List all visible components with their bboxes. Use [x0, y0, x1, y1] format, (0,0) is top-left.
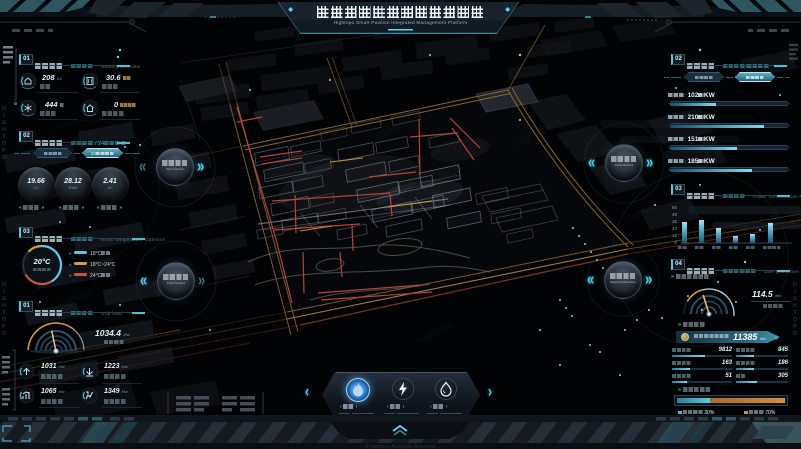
svg-text:60: 60 — [672, 205, 678, 210]
svg-text:© Hightopo All Rights Reserved: © Hightopo All Rights Reserved — [365, 443, 435, 449]
svg-text:12: 12 — [672, 233, 678, 238]
svg-text:48: 48 — [672, 212, 678, 217]
svg-text:Hightopo: Hightopo — [415, 319, 456, 348]
svg-text:24: 24 — [672, 226, 678, 231]
svg-text:36: 36 — [672, 219, 678, 224]
